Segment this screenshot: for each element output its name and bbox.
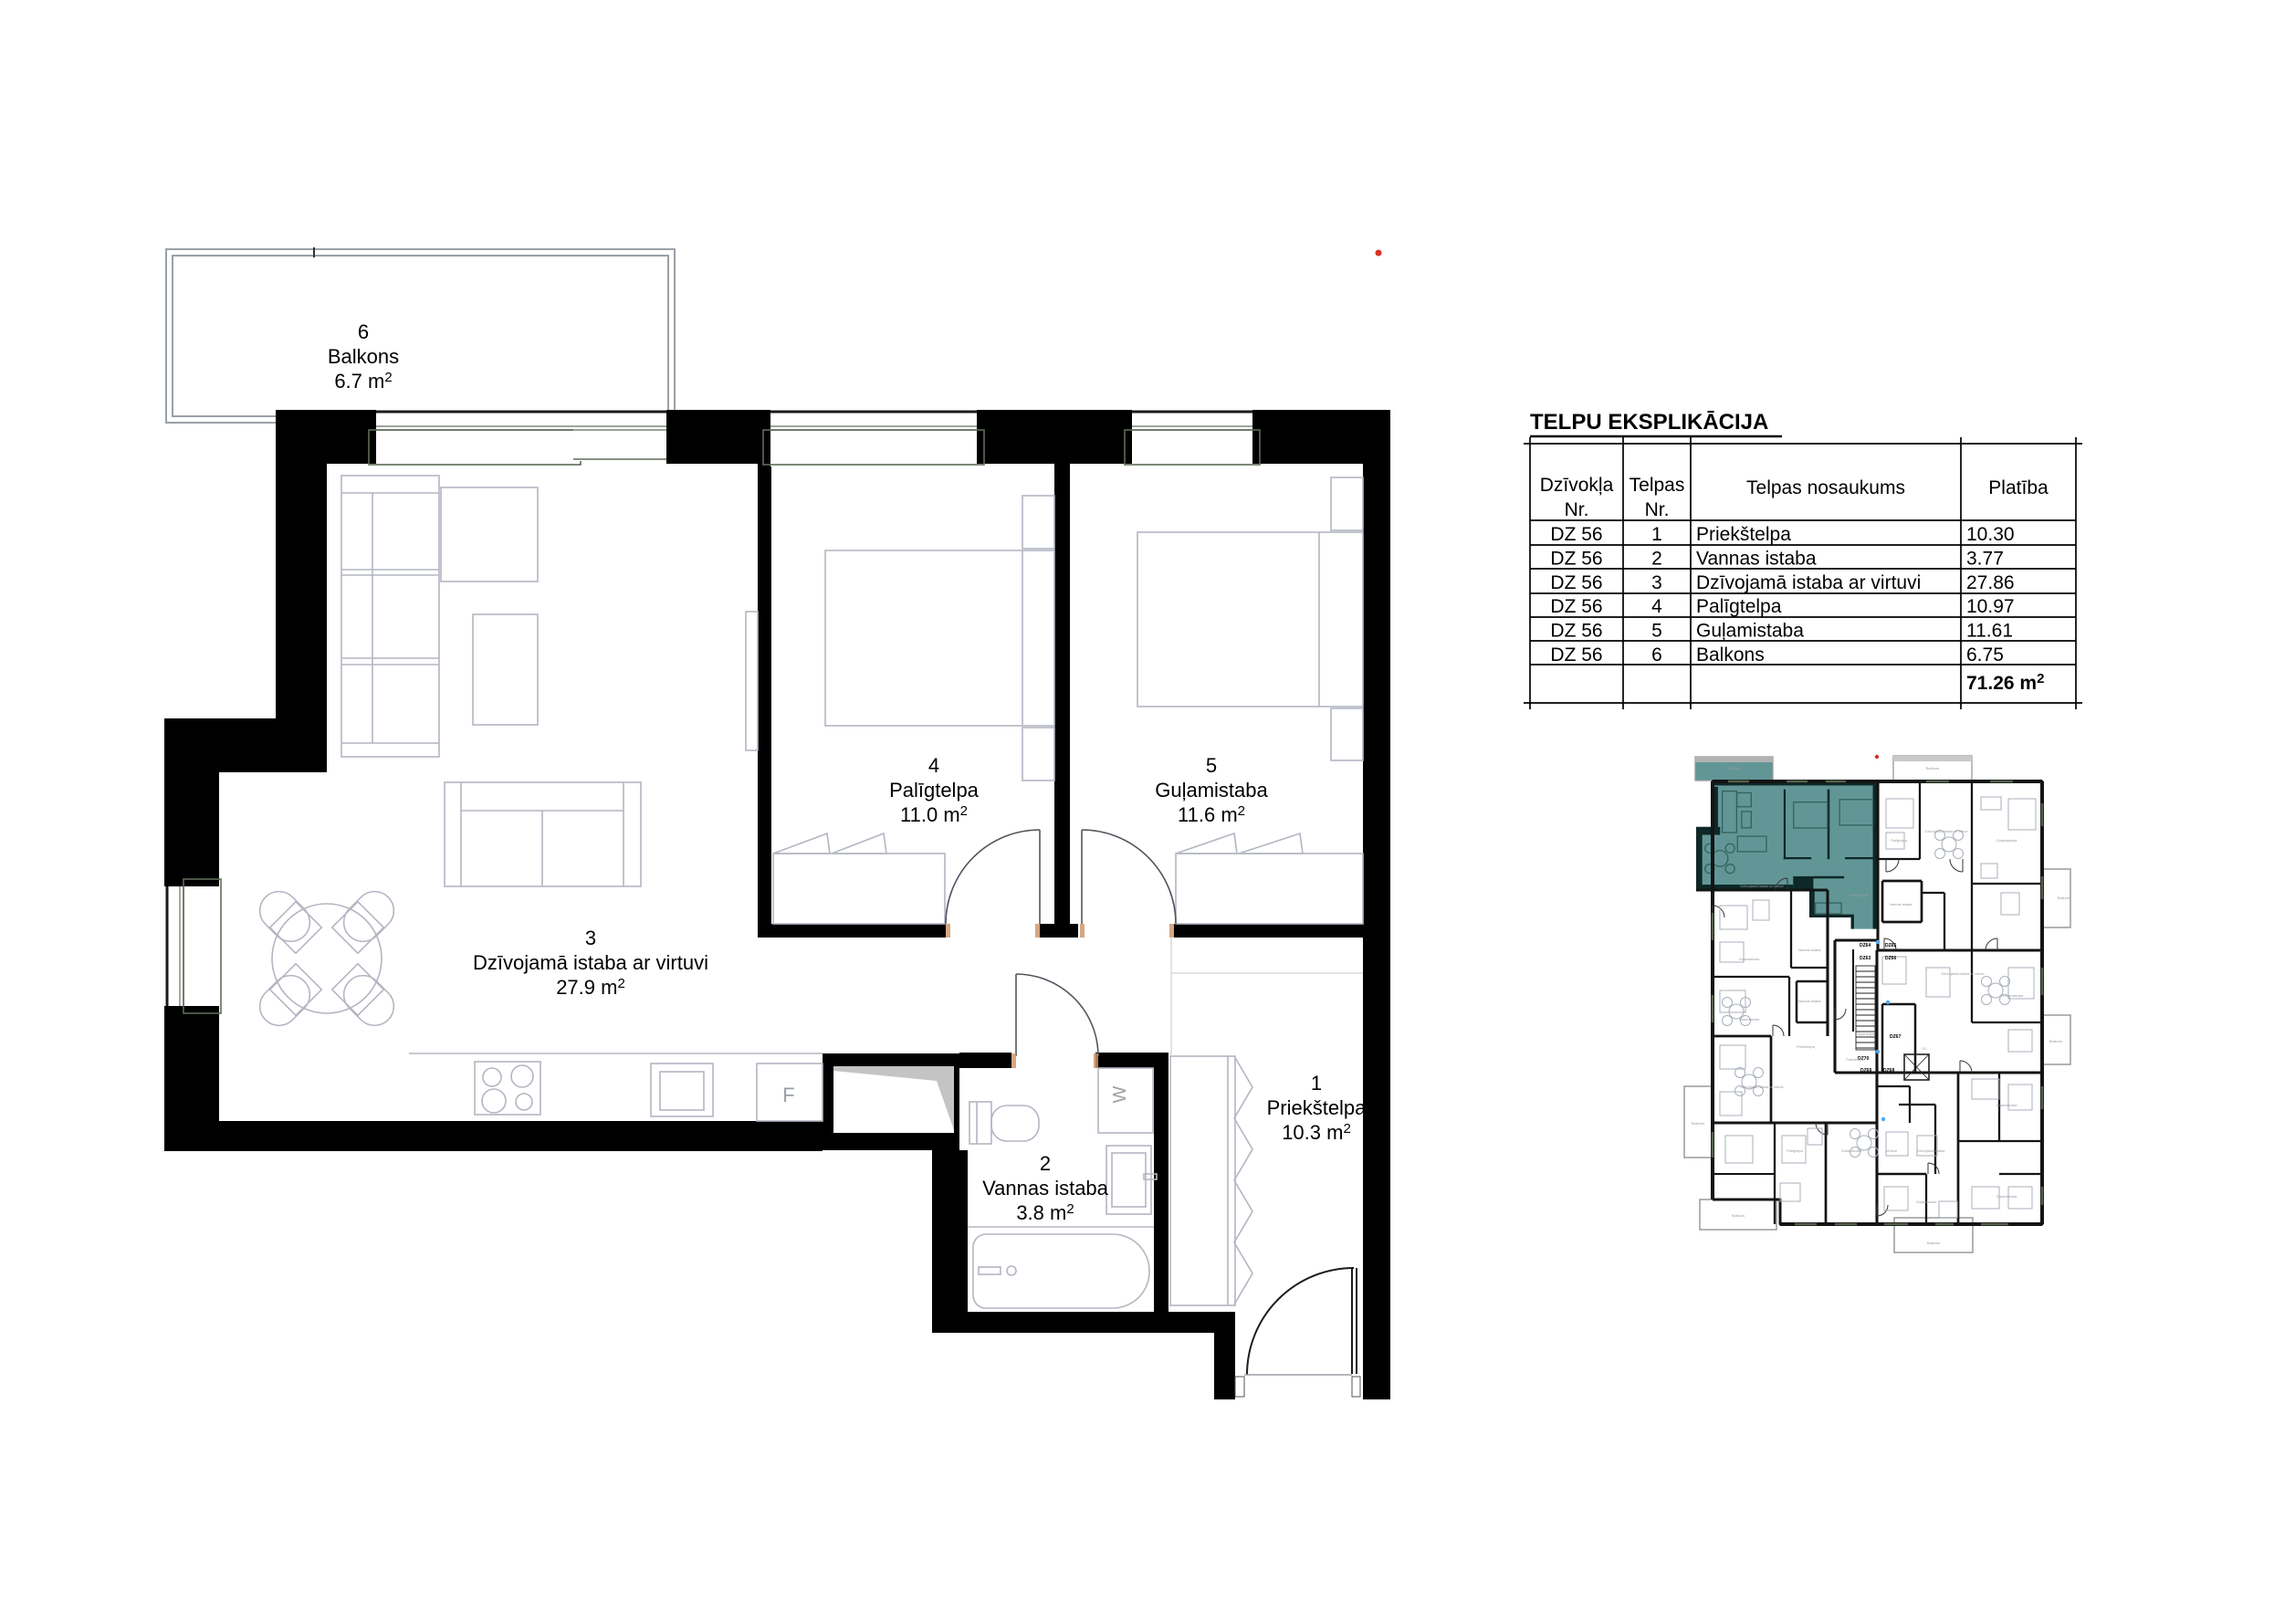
svg-text:5: 5 bbox=[1651, 621, 1662, 642]
svg-text:DZ 56: DZ 56 bbox=[1550, 524, 1602, 545]
svg-text:Balkons: Balkons bbox=[1732, 1213, 1745, 1218]
svg-text:3.77: 3.77 bbox=[1966, 548, 2004, 569]
svg-text:Priekštelpa: Priekštelpa bbox=[1850, 893, 1869, 897]
svg-text:DZ65: DZ65 bbox=[1885, 943, 1896, 948]
svg-text:Nr.: Nr. bbox=[1645, 499, 1670, 520]
svg-text:Dzīvojamā istaba ar virtuvi: Dzīvojamā istaba ar virtuvi bbox=[1741, 1084, 1784, 1089]
svg-text:DZ 56: DZ 56 bbox=[1550, 596, 1602, 617]
svg-text:10.30: 10.30 bbox=[1966, 524, 2015, 545]
svg-text:4: 4 bbox=[928, 754, 939, 777]
svg-text:Balkons: Balkons bbox=[328, 345, 399, 368]
svg-text:Priekštelpa: Priekštelpa bbox=[1797, 1044, 1816, 1049]
svg-text:Balkons: Balkons bbox=[1727, 766, 1740, 770]
svg-text:5: 5 bbox=[1206, 754, 1217, 777]
svg-text:2: 2 bbox=[1651, 548, 1662, 569]
svg-text:Priekštelpa: Priekštelpa bbox=[1696, 524, 1791, 545]
svg-text:Dzīvojamā istaba ar virtuvi: Dzīvojamā istaba ar virtuvi bbox=[473, 951, 708, 974]
svg-text:Guļamistaba: Guļamistaba bbox=[2003, 993, 2024, 998]
svg-text:3: 3 bbox=[585, 927, 596, 949]
svg-text:Vannas istaba: Vannas istaba bbox=[982, 1177, 1109, 1200]
svg-text:Kāpņutelpa: Kāpņutelpa bbox=[1856, 1032, 1875, 1036]
svg-text:6.75: 6.75 bbox=[1966, 644, 2004, 665]
svg-text:Telpas nosaukums: Telpas nosaukums bbox=[1746, 477, 1905, 498]
svg-text:Palīgtelpa: Palīgtelpa bbox=[1787, 1148, 1804, 1153]
svg-text:10.3 m2: 10.3 m2 bbox=[1282, 1121, 1351, 1144]
svg-text:DZ 56: DZ 56 bbox=[1550, 644, 1602, 665]
svg-text:71.26 m2: 71.26 m2 bbox=[1966, 671, 2044, 694]
svg-text:Telpas: Telpas bbox=[1630, 475, 1685, 496]
svg-text:Guļamistaba: Guļamistaba bbox=[1739, 957, 1760, 961]
svg-text:Virtuve: Virtuve bbox=[1886, 1148, 1898, 1153]
svg-text:TELPU EKSPLIKĀCIJA: TELPU EKSPLIKĀCIJA bbox=[1530, 410, 1768, 435]
svg-text:Priekštelpa: Priekštelpa bbox=[1267, 1096, 1368, 1119]
svg-text:F: F bbox=[782, 1084, 794, 1106]
svg-text:Guļamistaba: Guļamistaba bbox=[1916, 1200, 1937, 1204]
svg-text:DZ 56: DZ 56 bbox=[1550, 621, 1602, 642]
svg-text:Guļamistaba: Guļamistaba bbox=[1841, 1148, 1862, 1153]
svg-text:Balkons: Balkons bbox=[1926, 766, 1939, 770]
svg-text:Vannas istaba: Vannas istaba bbox=[1797, 999, 1821, 1003]
svg-text:DZ67: DZ67 bbox=[1890, 1034, 1901, 1040]
svg-text:Guļamistaba: Guļamistaba bbox=[1996, 1103, 2017, 1107]
svg-text:Guļamistaba: Guļamistaba bbox=[1155, 779, 1268, 802]
svg-text:Guļamistaba: Guļamistaba bbox=[1739, 1017, 1760, 1022]
svg-text:10.97: 10.97 bbox=[1966, 596, 2015, 617]
svg-text:11.61: 11.61 bbox=[1966, 621, 2013, 642]
svg-text:11.0 m2: 11.0 m2 bbox=[900, 803, 968, 826]
svg-text:Palīgtelpa: Palīgtelpa bbox=[1696, 596, 1782, 617]
svg-text:Guļamistaba: Guļamistaba bbox=[1696, 621, 1804, 642]
svg-text:Platība: Platība bbox=[1988, 477, 2049, 498]
svg-text:Vannas istaba: Vannas istaba bbox=[1797, 948, 1821, 952]
svg-text:6: 6 bbox=[358, 320, 369, 343]
svg-text:Dzīvojamā istaba ar virtuvi: Dzīvojamā istaba ar virtuvi bbox=[1942, 971, 1985, 976]
svg-text:Dzīvojamā istaba ar virtuvi: Dzīvojamā istaba ar virtuvi bbox=[1925, 829, 1968, 833]
svg-text:1: 1 bbox=[1651, 524, 1662, 545]
svg-text:Dzīvojamā istaba: Dzīvojamā istaba bbox=[1917, 1148, 1945, 1153]
svg-text:Balkons: Balkons bbox=[1692, 1121, 1704, 1126]
svg-text:Balkons: Balkons bbox=[2049, 1039, 2062, 1043]
svg-text:Balkons: Balkons bbox=[2058, 896, 2070, 900]
svg-text:VC: VC bbox=[1922, 1046, 1927, 1051]
svg-text:DZ 56: DZ 56 bbox=[1550, 572, 1602, 593]
svg-text:Vannas istaba: Vannas istaba bbox=[1889, 902, 1912, 906]
svg-text:DZ64: DZ64 bbox=[1860, 943, 1871, 948]
svg-text:W: W bbox=[1110, 1085, 1130, 1103]
svg-text:3.8 m2: 3.8 m2 bbox=[1016, 1201, 1074, 1224]
svg-text:6.7 m2: 6.7 m2 bbox=[334, 370, 392, 393]
svg-text:Balkons: Balkons bbox=[1696, 644, 1765, 665]
svg-text:3: 3 bbox=[1651, 572, 1662, 593]
svg-text:Palīgtelpa: Palīgtelpa bbox=[889, 779, 980, 802]
svg-text:Guļamistaba: Guļamistaba bbox=[1996, 838, 2017, 843]
svg-text:Vannas istaba: Vannas istaba bbox=[1696, 548, 1817, 569]
svg-text:Priekštelpa: Priekštelpa bbox=[1846, 1057, 1865, 1062]
svg-text:6: 6 bbox=[1651, 644, 1662, 665]
svg-text:Palīgtelpa: Palīgtelpa bbox=[1891, 838, 1908, 843]
svg-text:27.86: 27.86 bbox=[1966, 572, 2015, 593]
svg-text:DZ66: DZ66 bbox=[1885, 956, 1896, 961]
svg-text:Nr.: Nr. bbox=[1565, 499, 1589, 520]
svg-text:11.6 m2: 11.6 m2 bbox=[1178, 803, 1245, 826]
svg-text:DZ69: DZ69 bbox=[1860, 1068, 1871, 1074]
svg-text:DZ68: DZ68 bbox=[1883, 1068, 1894, 1074]
svg-text:DZ63: DZ63 bbox=[1860, 956, 1871, 961]
svg-text:Balkons: Balkons bbox=[1927, 1241, 1940, 1245]
svg-text:2: 2 bbox=[1040, 1152, 1051, 1175]
svg-text:Guļamistaba: Guļamistaba bbox=[1996, 1194, 2017, 1199]
svg-text:Dzīvokļa: Dzīvokļa bbox=[1540, 475, 1614, 496]
svg-text:Dzīvojamā istaba ar virtuvi: Dzīvojamā istaba ar virtuvi bbox=[1741, 884, 1784, 888]
svg-text:27.9 m2: 27.9 m2 bbox=[556, 976, 625, 999]
svg-text:DZ 56: DZ 56 bbox=[1550, 548, 1602, 569]
svg-text:4: 4 bbox=[1651, 596, 1662, 617]
svg-text:Dzīvojamā istaba ar virtuvi: Dzīvojamā istaba ar virtuvi bbox=[1696, 572, 1921, 593]
svg-text:1: 1 bbox=[1311, 1072, 1322, 1095]
